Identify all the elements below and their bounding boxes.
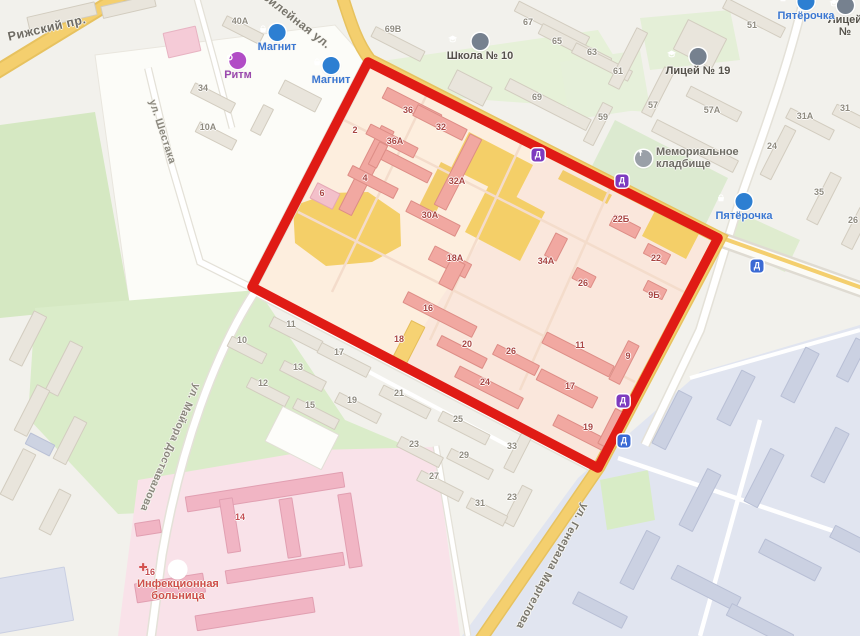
building-number: 63	[587, 47, 597, 57]
poi-label: Школа № 10	[447, 51, 514, 63]
building-number: 14	[235, 512, 245, 522]
building-number: 29	[459, 450, 469, 460]
school-icon[interactable]	[471, 33, 488, 50]
building-number: 10А	[200, 122, 217, 132]
building-number: 26	[848, 215, 858, 225]
building-number: 17	[565, 381, 575, 391]
transit-stop-icon[interactable]: Д	[751, 260, 764, 273]
building-number: 11	[575, 340, 585, 350]
basket-icon[interactable]	[797, 0, 814, 10]
poi-magnit-2[interactable]: Магнит	[312, 57, 351, 87]
building-number: 36А	[387, 136, 404, 146]
building-number: 35	[814, 187, 824, 197]
building-number: 26	[578, 278, 588, 288]
building-number: 61	[613, 66, 623, 76]
poi-label: Ритм	[224, 70, 252, 82]
building-number: 13	[293, 362, 303, 372]
poi-label: Пятёрочка	[715, 211, 772, 223]
building-number: 51	[747, 20, 757, 30]
building-number: 12	[258, 378, 268, 388]
building-number: 24	[767, 141, 777, 151]
building-number: 19	[347, 395, 357, 405]
poi-ritm[interactable]: Ритм	[224, 52, 252, 82]
building-number: 23	[409, 439, 419, 449]
poi-label: Мемориальное кладбище	[656, 147, 739, 170]
basket-icon[interactable]	[322, 57, 339, 74]
poi-magnit-1[interactable]: Магнит	[258, 24, 297, 54]
poi-school-10[interactable]: Школа № 10	[447, 33, 514, 63]
building-number: 31	[475, 498, 485, 508]
building-number: 22Б	[613, 214, 629, 224]
transit-stop-icon[interactable]: Д	[617, 395, 630, 408]
building-number: 20	[462, 339, 472, 349]
building-number: 2	[352, 125, 357, 135]
building-number: 31	[840, 103, 850, 113]
poi-label: Магнит	[258, 42, 297, 54]
poi-label: Лицей № 19	[666, 66, 731, 78]
building-number: 17	[334, 347, 344, 357]
building-number: 40А	[232, 16, 249, 26]
basket-icon[interactable]	[268, 24, 285, 41]
building-number: 24	[480, 377, 490, 387]
building-number: 6	[319, 188, 324, 198]
building-number: 21	[394, 388, 404, 398]
poi-memorial-cemetery[interactable]: Мемориальное кладбище	[635, 147, 739, 170]
building-number: 59	[598, 112, 608, 122]
poi-label: Инфекционная больница	[137, 579, 219, 602]
building-number: 57А	[704, 105, 721, 115]
poi-label: Пятёрочка	[777, 11, 834, 23]
transit-stop-icon[interactable]: Д	[618, 435, 631, 448]
building-number: 69В	[385, 24, 402, 34]
building-number: 34А	[538, 256, 555, 266]
building-number: 10	[237, 335, 247, 345]
building-number: 30А	[422, 210, 439, 220]
poi-infection-hospital[interactable]: Инфекционная больница	[137, 561, 219, 602]
poi-pyaterochka-1[interactable]: Пятёрочка	[777, 0, 834, 23]
building-number: 36	[403, 105, 413, 115]
school-icon[interactable]	[837, 0, 854, 14]
memorial-icon[interactable]	[635, 150, 652, 167]
poi-licey-19[interactable]: Лицей № 19	[666, 48, 731, 78]
building-number: 31А	[797, 111, 814, 121]
transit-stop-icon[interactable]: Д	[532, 149, 545, 162]
building-number: 11	[286, 319, 296, 329]
building-number: 19	[583, 422, 593, 432]
building-number: 18	[394, 334, 404, 344]
school-icon[interactable]	[689, 48, 706, 65]
flower-icon[interactable]	[230, 52, 247, 69]
poi-label: Магнит	[312, 75, 351, 87]
map-canvas[interactable]: 23636А32432А30А618А34А2622Б229Б161820262…	[0, 0, 860, 636]
building-number: 23	[507, 492, 517, 502]
building-number: 32А	[449, 176, 466, 186]
building-number: 25	[453, 414, 463, 424]
building-number: 4	[362, 173, 367, 183]
building-number: 26	[506, 346, 516, 356]
cross-icon[interactable]	[169, 561, 186, 578]
building-number: 27	[429, 471, 439, 481]
building-number: 16	[423, 303, 433, 313]
basket-icon[interactable]	[735, 193, 752, 210]
building-number: 9Б	[648, 290, 659, 300]
building-number: 22	[651, 253, 661, 263]
building-number: 33	[507, 441, 517, 451]
transit-stop-icon[interactable]: Д	[616, 175, 629, 188]
building-number: 9	[625, 351, 630, 361]
building-number: 65	[552, 36, 562, 46]
building-number: 34	[198, 83, 208, 93]
building-number: 57	[648, 100, 658, 110]
building-number: 69	[532, 92, 542, 102]
building-labels-layer: 23636А32432А30А618А34А2622Б229Б161820262…	[0, 0, 860, 636]
building-number: 32	[436, 122, 446, 132]
building-number: 67	[523, 17, 533, 27]
building-number: 15	[305, 400, 315, 410]
poi-pyaterochka-2[interactable]: Пятёрочка	[715, 193, 772, 223]
building-number: 18А	[447, 253, 464, 263]
